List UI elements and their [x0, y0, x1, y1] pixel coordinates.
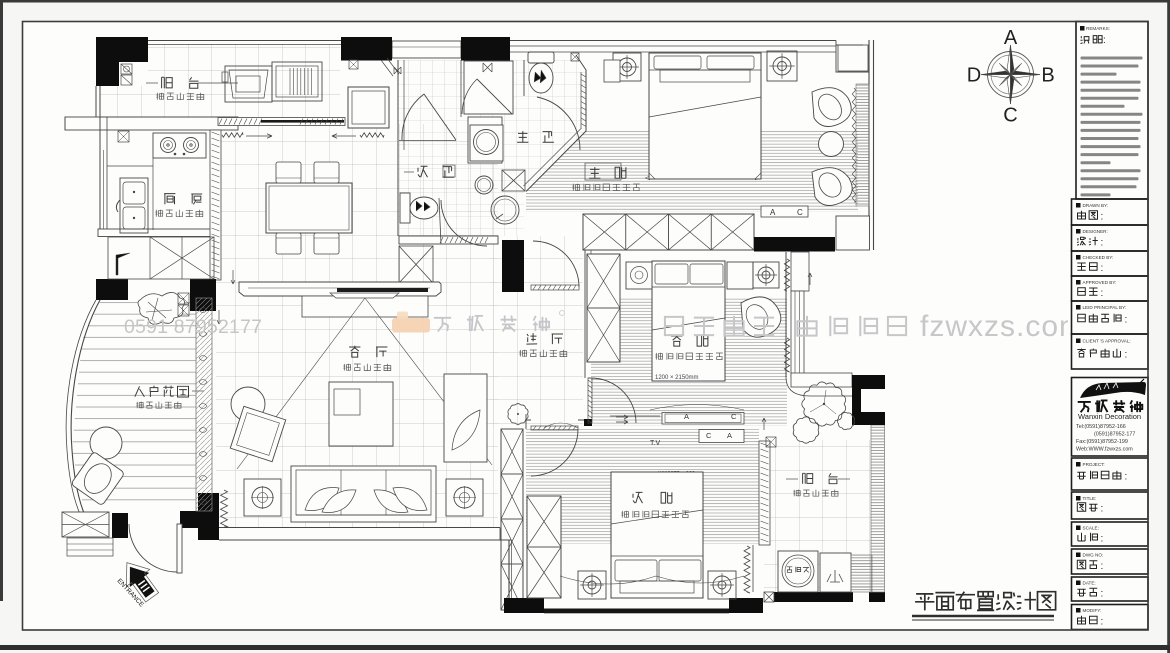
svg-text:APPROVED BY:: APPROVED BY: [1083, 280, 1117, 285]
svg-text:DRAWN BY:: DRAWN BY: [1083, 203, 1109, 208]
svg-text:REMARKS:: REMARKS: [1086, 26, 1110, 31]
svg-text:T.V: T.V [650, 440, 660, 447]
svg-text:fzwxzs.com: fzwxzs.com [920, 310, 1085, 343]
svg-text:C: C [1003, 105, 1017, 127]
svg-text:D: D [967, 65, 981, 87]
svg-text:A: A [727, 431, 732, 440]
svg-text:0591 87952177: 0591 87952177 [124, 316, 262, 338]
svg-text::: : [1101, 288, 1104, 299]
svg-text:DATE:: DATE: [1083, 581, 1096, 586]
svg-text::: : [1101, 561, 1104, 572]
svg-text:DESIGNER:: DESIGNER: [1083, 229, 1108, 234]
svg-text:1200 × 2150mm: 1200 × 2150mm [655, 375, 699, 381]
svg-text::: : [1125, 472, 1128, 483]
svg-text:PROJECT:: PROJECT: [1083, 462, 1105, 467]
svg-text:DWG NO:: DWG NO: [1083, 553, 1104, 558]
svg-text:LEID PRINCIPAL BY:: LEID PRINCIPAL BY: [1083, 305, 1127, 310]
svg-text:B: B [1041, 65, 1054, 87]
svg-text:CLIENT 'S APPROVAL:: CLIENT 'S APPROVAL: [1083, 339, 1131, 344]
svg-text:C: C [706, 431, 712, 440]
svg-text:CHECKED BY:: CHECKED BY: [1083, 255, 1114, 260]
svg-text:TITLE:: TITLE: [1083, 496, 1097, 501]
svg-text:A: A [1004, 27, 1018, 49]
svg-text::: : [1103, 35, 1106, 46]
svg-text::: : [1101, 212, 1104, 223]
svg-text:MODIFY:: MODIFY: [1083, 608, 1102, 613]
svg-text:Wanxin Decoration: Wanxin Decoration [1078, 412, 1141, 421]
svg-text::: : [1101, 617, 1104, 628]
svg-text:A: A [684, 412, 689, 421]
svg-text::: : [1125, 350, 1128, 361]
svg-text::: : [1101, 589, 1104, 600]
svg-text::: : [1101, 534, 1104, 545]
svg-text:C: C [797, 208, 803, 217]
svg-text:Web:WWW.fzwxzs.com: Web:WWW.fzwxzs.com [1076, 447, 1133, 453]
svg-text::: : [1101, 263, 1104, 274]
svg-text:C: C [731, 412, 737, 421]
svg-text:(0591)87952-177: (0591)87952-177 [1094, 432, 1135, 438]
svg-text:Fax:(0591)87952-199: Fax:(0591)87952-199 [1076, 439, 1128, 445]
svg-text::: : [1101, 238, 1104, 249]
svg-text::: : [1101, 504, 1104, 515]
svg-text:A: A [770, 208, 776, 217]
svg-text::: : [1125, 315, 1128, 326]
svg-text:Tel:(0591)87952-166: Tel:(0591)87952-166 [1076, 424, 1126, 430]
svg-text:SCALE:: SCALE: [1083, 526, 1099, 531]
